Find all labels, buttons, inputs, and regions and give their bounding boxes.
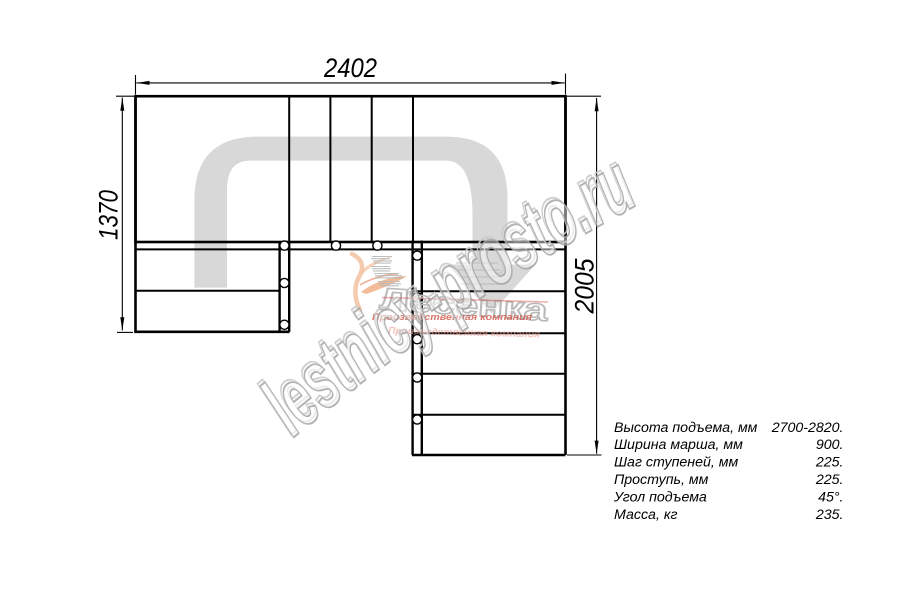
svg-text:225.: 225. — [815, 472, 844, 488]
svg-text:2402: 2402 — [323, 53, 377, 83]
svg-text:235.: 235. — [815, 507, 844, 523]
svg-text:Шаг ступеней, мм: Шаг ступеней, мм — [614, 455, 738, 471]
svg-text:2005: 2005 — [570, 258, 600, 315]
svg-text:Масса, кг: Масса, кг — [614, 507, 678, 523]
svg-text:Ширина марша, мм: Ширина марша, мм — [614, 437, 743, 453]
svg-text:2700-2820.: 2700-2820. — [771, 420, 844, 436]
svg-text:900.: 900. — [816, 437, 844, 453]
svg-text:Проступь, мм: Проступь, мм — [614, 472, 709, 488]
svg-text:225.: 225. — [815, 455, 844, 471]
svg-text:Высота подъема, мм: Высота подъема, мм — [614, 420, 758, 436]
svg-text:45°.: 45°. — [818, 489, 843, 505]
svg-text:1370: 1370 — [94, 190, 124, 240]
svg-text:Угол подъема: Угол подъема — [613, 489, 707, 505]
